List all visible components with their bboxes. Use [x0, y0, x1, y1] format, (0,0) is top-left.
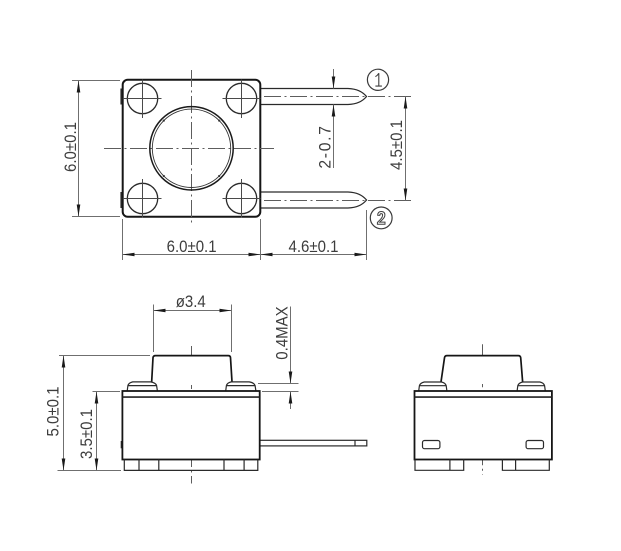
- svg-text:6.0±0.1: 6.0±0.1: [167, 238, 217, 256]
- svg-text:4.5±0.1: 4.5±0.1: [388, 120, 406, 170]
- svg-text:ø3.4: ø3.4: [176, 293, 206, 311]
- svg-text:0.4MAX: 0.4MAX: [274, 306, 292, 360]
- svg-text:5.0±0.1: 5.0±0.1: [45, 387, 63, 437]
- svg-text:2-0.7: 2-0.7: [316, 124, 334, 168]
- svg-text:3.5±0.1: 3.5±0.1: [78, 409, 96, 459]
- svg-text:6.0±0.1: 6.0±0.1: [62, 122, 80, 172]
- svg-text:4.6±0.1: 4.6±0.1: [289, 238, 339, 256]
